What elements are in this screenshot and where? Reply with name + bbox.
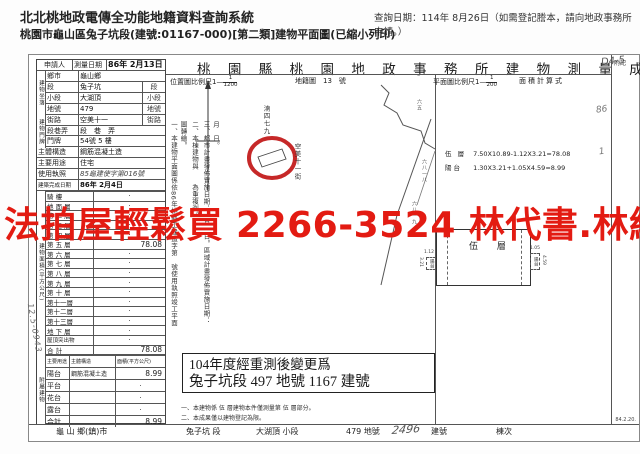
handwritten-mark: 1 [598, 147, 605, 158]
formula-expression: 7.50X10.89-1.12X3.21=78.08 [473, 150, 570, 158]
balcony-left: 陽台 [426, 257, 436, 270]
footer-building-sequence-label: 棟次 [496, 426, 512, 437]
parcel-number-label: 湳四七九 [261, 105, 271, 135]
survey-document: 桃 園 縣 桃 園 地 政 事 務 所 建 物 測 量 成 果 圖 D4-5 位… [28, 54, 640, 442]
handwritten-mark: 86 [595, 104, 608, 115]
footer-building-number-label: 建號 [431, 426, 447, 437]
document-footnote: 一、本建物係 伍 層建物本件僅測量第 伍 層部分。 [181, 403, 315, 412]
balcony-label: 陽台 [429, 259, 434, 268]
north-arrow-icon [196, 80, 220, 191]
footer-building-number-handwritten: 2496 [391, 422, 421, 437]
document-footnote: 二、本成果僅以建物登記為限。 [181, 413, 265, 422]
document-subtitle: 桃園市龜山區兔子坑段(建號:01167-000)[第二類]建物平面圖(已縮小列印… [20, 26, 395, 42]
footer-land-number: 479 地號 [346, 426, 380, 437]
area-formula: 陽台 1.30X3.21+1.05X4.59=8.99 [445, 162, 565, 172]
form-version: 84.2.20. [615, 417, 636, 423]
dimension-label: 4.59 [541, 255, 546, 265]
subject-parcel-highlight-circle [249, 138, 295, 178]
footer-divider [29, 424, 639, 425]
realtor-watermark: 法拍屋輕鬆買 2266-3524 林代書.林經理 [4, 196, 640, 248]
area-formula: 伍 層 7.50X10.89-1.12X3.21=78.08 [445, 148, 570, 158]
street-name-label: 空美十一街 [292, 143, 302, 181]
footer-subsection: 大湖頂 小段 [256, 426, 299, 437]
system-title: 北北桃地政電傳全功能地籍資料查詢系統 [20, 7, 254, 26]
map-road-label: 六八一八 [421, 159, 428, 183]
formula-name: 伍 層 [445, 148, 471, 158]
query-date: 查詢日期：114年 8月26日（如需登記謄本，請向地政事務所申請。） [374, 10, 640, 38]
footer-section: 兔子坑 段 [186, 426, 221, 437]
app-screen: 北北桃地政電傳全功能地籍資料查詢系統 查詢日期：114年 8月26日（如需登記謄… [0, 0, 640, 454]
balcony-label: 陽台 [533, 257, 538, 266]
dimension-label: 1.12 [424, 250, 434, 255]
map-road-label: 六五 [416, 99, 423, 111]
resurvey-line-1: 104年度經重測後變更爲 [189, 356, 428, 373]
footer-township: 龜 山 鄉(鎮)市 [56, 426, 107, 437]
subject-parcel-outline [258, 149, 286, 167]
balcony-right: 陽台 [530, 253, 540, 270]
formula-name: 陽台 [445, 162, 471, 172]
formula-expression: 1.30X3.21+1.05X4.59=8.99 [473, 164, 565, 172]
parcel-boundary-line [381, 85, 435, 149]
resurvey-line-2: 兔子坑段 497 地號 1167 建號 [189, 373, 428, 391]
dimension-label: 3.21 [418, 257, 423, 267]
resurvey-annotation-box: 104年度經重測後變更爲 兔子坑段 497 地號 1167 建號 [182, 353, 435, 393]
